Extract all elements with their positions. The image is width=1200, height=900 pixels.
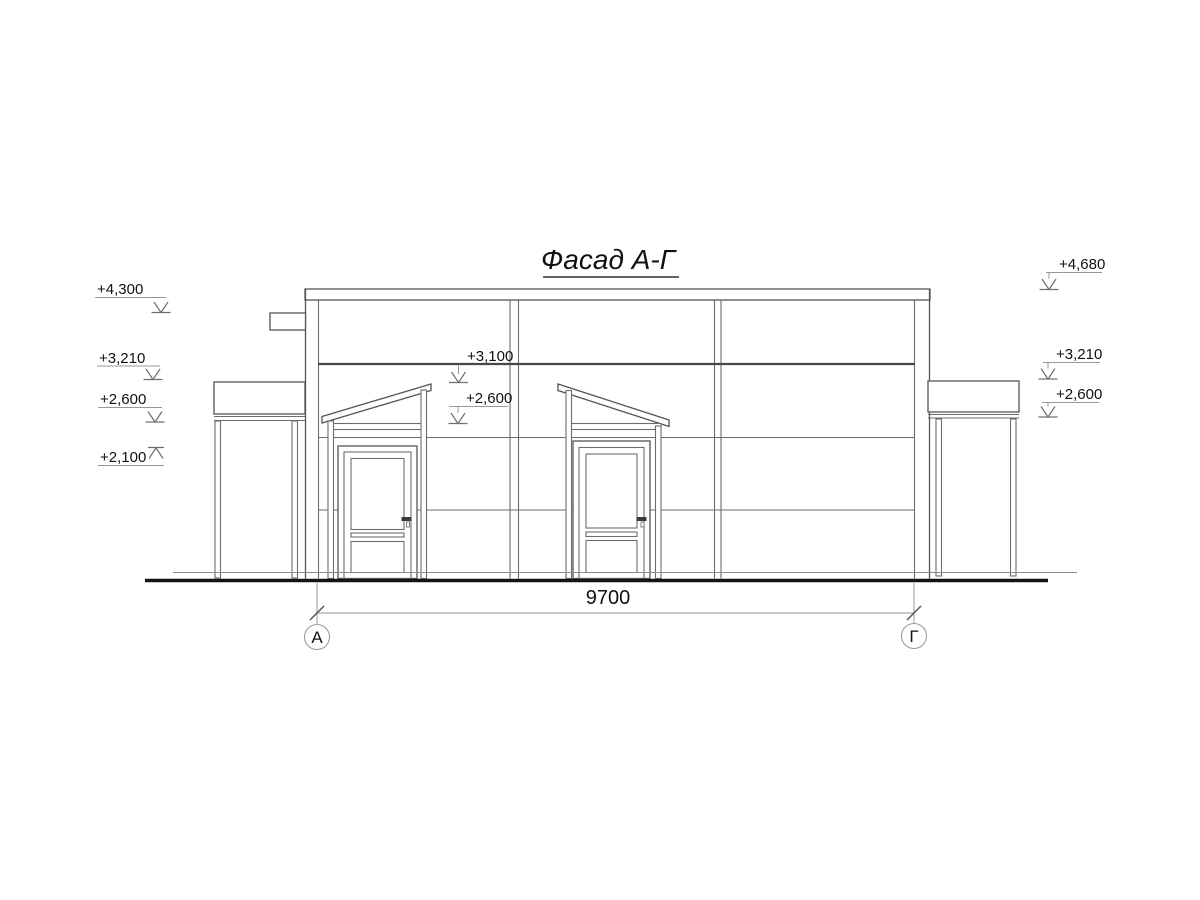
canopy-post-left: [566, 391, 572, 579]
door-lock: [407, 522, 410, 527]
door-frame: [338, 446, 417, 579]
drawing-title-block: Фасад А-Г: [541, 244, 679, 277]
right-structure-post: [936, 419, 942, 576]
elevation-label: +4,680: [1059, 256, 1105, 273]
roof-protrusion: [270, 313, 306, 330]
right-structure-post: [1011, 419, 1017, 576]
elevation-arrow-down-icon: [1040, 279, 1059, 290]
elevation-label: +2,100: [100, 449, 146, 466]
left-structure-post: [215, 421, 221, 578]
drawing-title: Фасад А-Г: [541, 244, 677, 275]
elevation-arrow-down-icon: [144, 369, 163, 380]
elevation-label: +3,100: [467, 348, 513, 365]
elevation-mark-right-3210: +3,210: [1039, 346, 1103, 379]
door-handle: [637, 517, 647, 521]
left-fascia: [214, 382, 305, 414]
right-side-structure: [928, 381, 1019, 576]
canopy-post-right: [656, 426, 662, 579]
right-fascia: [928, 381, 1019, 412]
elevation-arrow-down-icon: [449, 413, 468, 424]
elevation-mark-left-2100: +2,100: [98, 448, 164, 467]
axis-label-a: А: [311, 628, 323, 647]
axis-label-g: Г: [909, 627, 918, 646]
elevation-arrow-up-icon: [148, 448, 164, 459]
canopy-header: [566, 424, 661, 430]
door-mid-rail: [586, 532, 637, 537]
left-structure-post: [292, 421, 298, 578]
canopy-post-left: [328, 421, 334, 579]
canopy-post-right: [421, 390, 427, 579]
entrance-door-1: [322, 384, 431, 579]
door-frame: [573, 441, 650, 579]
elevation-label: +4,300: [97, 281, 143, 298]
elevation-label: +3,210: [1056, 346, 1102, 363]
elevation-arrow-down-icon: [1039, 369, 1058, 380]
dimension-and-axes: 9700 А Г: [305, 583, 927, 650]
door-handle: [402, 517, 412, 521]
elevation-arrow-down-icon: [146, 412, 165, 423]
elevation-mark-mid-2600: +2,600: [449, 390, 513, 424]
elevation-label: +2,600: [1056, 386, 1102, 403]
elevation-mark-right-2600: +2,600: [1039, 386, 1103, 417]
elevation-mark-left-3210: +3,210: [97, 350, 163, 380]
canopy-header: [328, 424, 427, 430]
elevation-mark-left-4300: +4,300: [95, 281, 171, 313]
door-canopy: [558, 384, 669, 427]
elevation-arrow-down-icon: [152, 302, 171, 313]
left-side-structure: [214, 382, 305, 578]
door-lock: [641, 522, 644, 527]
elevation-label: +2,600: [466, 390, 512, 407]
door-mid-rail: [351, 533, 404, 537]
facade-drawing-canvas: 9700 А Г Фасад А-Г +4,300 +3,210 +2,600 …: [0, 0, 1200, 900]
elevation-label: +3,210: [99, 350, 145, 367]
elevation-mark-left-2600: +2,600: [98, 391, 165, 422]
facade-elevation-drawing: 9700 А Г Фасад А-Г +4,300 +3,210 +2,600 …: [0, 0, 1200, 900]
elevation-mark-mid-3100: +3,100: [449, 348, 513, 383]
door-canopy: [322, 384, 431, 423]
elevation-label: +2,600: [100, 391, 146, 408]
entrance-door-2: [558, 384, 669, 579]
parapet-band: [305, 289, 930, 300]
elevation-arrow-down-icon: [1039, 407, 1058, 418]
dimension-label: 9700: [586, 587, 631, 609]
elevation-mark-right-4680: +4,680: [1040, 256, 1106, 290]
